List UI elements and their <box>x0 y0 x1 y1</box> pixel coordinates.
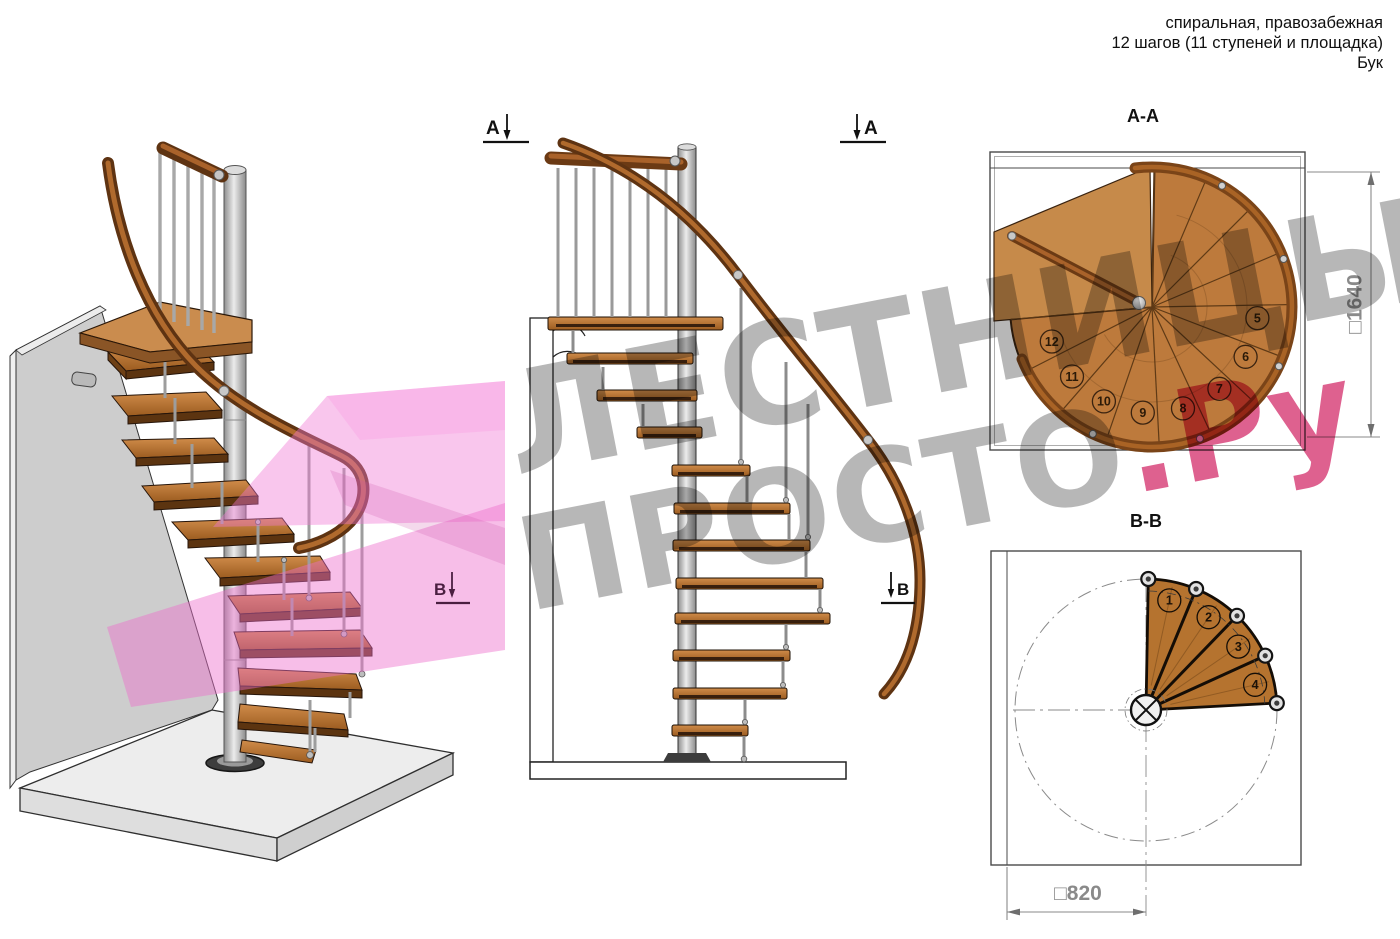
step-number: 11 <box>1065 370 1078 384</box>
section-arrow-icon <box>504 130 511 140</box>
drawing-canvas: А-А <box>0 0 1400 939</box>
tread <box>597 390 697 401</box>
aa-title: А-А <box>1127 106 1159 126</box>
section-letter: В <box>434 580 446 599</box>
bb-dimension: □820 <box>1007 867 1146 920</box>
tread <box>112 392 222 424</box>
drawing-sheet: спиральная, правозабежная 12 шагов (11 с… <box>0 0 1400 939</box>
step-number: 9 <box>1139 406 1146 420</box>
handrail-sleeve <box>734 271 743 280</box>
section-letter: А <box>486 118 500 139</box>
section-arrow-icon <box>888 589 894 598</box>
elevation-wall <box>530 318 553 762</box>
section-letter: В <box>897 580 909 599</box>
rail-connector <box>214 170 224 180</box>
section-plane-facet <box>327 381 505 440</box>
section-letter: А <box>864 118 878 139</box>
newel-ball <box>1133 297 1146 310</box>
tread <box>672 465 750 476</box>
elevation-view <box>530 143 920 779</box>
spec-line-material: Бук <box>1111 53 1383 73</box>
elevation-landing-railing <box>551 156 681 317</box>
plan-aa: А-А <box>990 106 1380 450</box>
step-number: 3 <box>1235 640 1242 654</box>
plan-bb: В-В <box>991 511 1301 920</box>
step-number: 12 <box>1045 335 1059 349</box>
spec-line-steps: 12 шагов (11 ступеней и площадка) <box>1111 33 1383 53</box>
step-number: 1 <box>1166 594 1173 608</box>
tread <box>672 725 748 736</box>
spec-text-block: спиральная, правозабежная 12 шагов (11 с… <box>1111 13 1383 73</box>
elevation-treads <box>567 353 830 736</box>
tread <box>675 613 830 624</box>
step-number: 2 <box>1205 611 1212 625</box>
tread <box>673 540 810 551</box>
step-number: 8 <box>1180 402 1187 416</box>
handrail-sleeve <box>219 386 229 396</box>
section-marker-a-left: А <box>483 114 529 142</box>
wall <box>10 306 218 788</box>
bb-dimension-label: □820 <box>1054 882 1102 905</box>
spec-line-type: спиральная, правозабежная <box>1111 13 1383 33</box>
tread <box>674 503 790 514</box>
step-number: 10 <box>1097 395 1111 409</box>
section-marker-b-right: В <box>881 572 915 603</box>
elevation-landing <box>548 317 723 330</box>
step-number: 4 <box>1252 678 1259 692</box>
tread <box>567 353 693 364</box>
tread <box>673 688 787 699</box>
section-arrow-icon <box>854 130 861 140</box>
tread <box>637 427 702 438</box>
view-3d <box>10 146 505 861</box>
bb-title: В-В <box>1130 511 1162 531</box>
handrail-sleeve <box>864 436 873 445</box>
tread <box>676 578 823 589</box>
step-number: 5 <box>1254 311 1261 325</box>
wall-peg <box>71 371 97 387</box>
section-marker-a-right: А <box>840 114 886 142</box>
rail-connector <box>670 156 680 166</box>
step-number: 7 <box>1216 382 1223 396</box>
aa-dimension-label: □1640 <box>1344 274 1367 333</box>
tread <box>673 650 790 661</box>
elevation-floor <box>530 762 846 779</box>
step-number: 6 <box>1242 350 1249 364</box>
aa-dimension: □1640 <box>1307 172 1380 437</box>
